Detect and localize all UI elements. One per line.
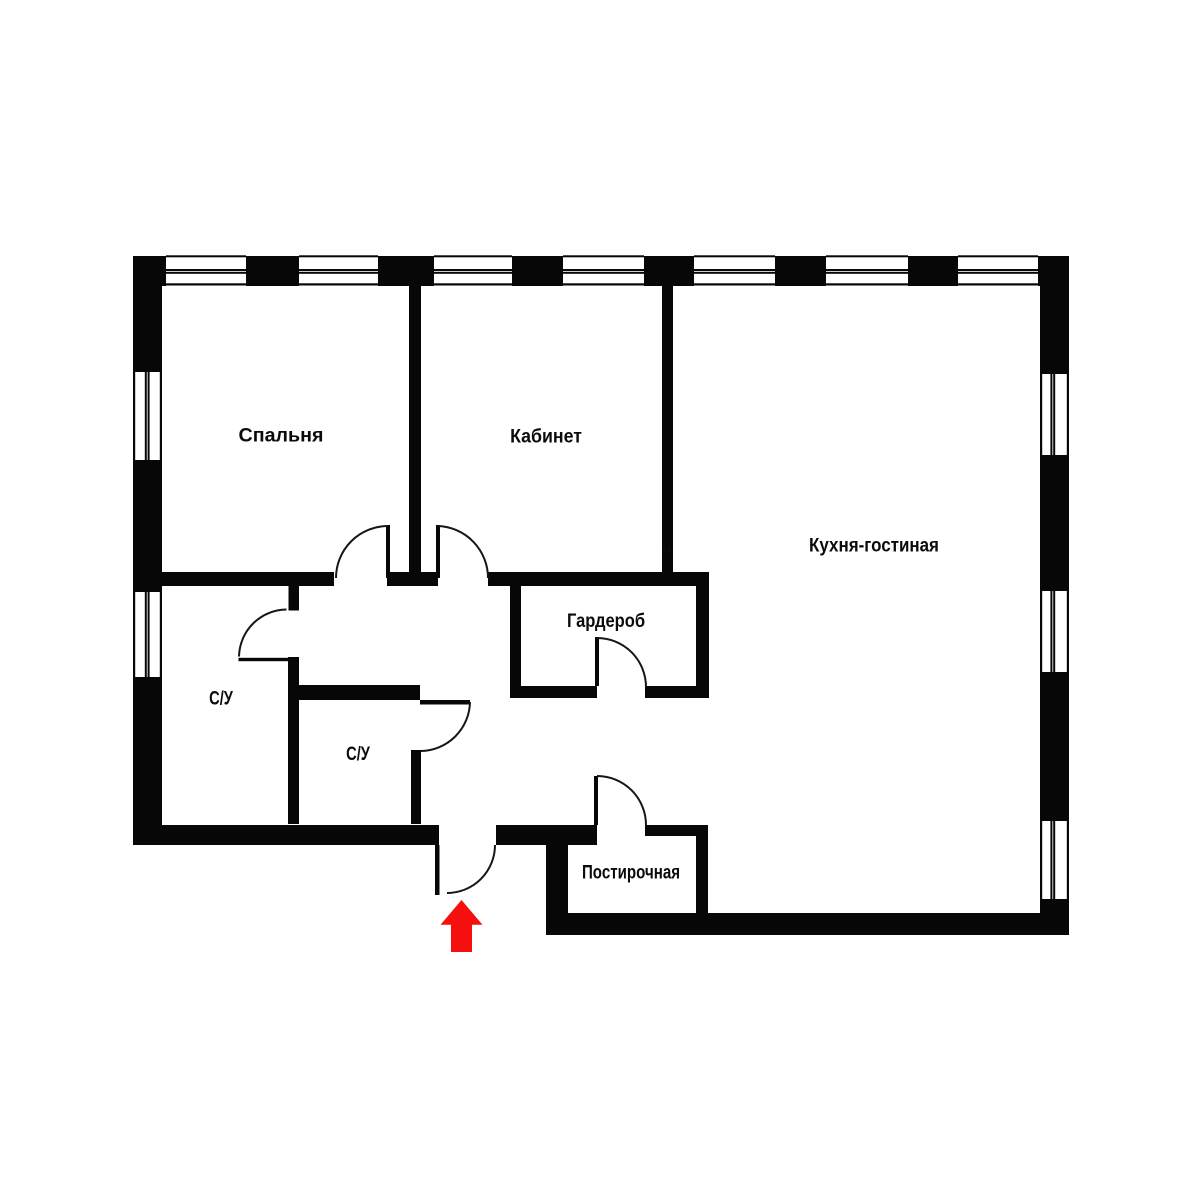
svg-text:С/У: С/У <box>209 688 233 709</box>
svg-text:Постирочная: Постирочная <box>582 861 680 883</box>
svg-text:Н: Н <box>663 543 672 557</box>
svg-text:Гардероб: Гардероб <box>567 610 645 631</box>
svg-text:Кабинет: Кабинет <box>510 425 582 447</box>
svg-text:Спальня: Спальня <box>239 426 324 447</box>
svg-text:С/У: С/У <box>346 743 370 764</box>
svg-text:Кухня-гостиная: Кухня-гостиная <box>809 534 939 555</box>
